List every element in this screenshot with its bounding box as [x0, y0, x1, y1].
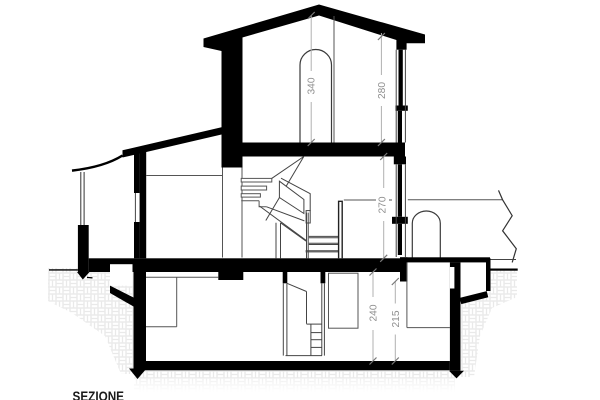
svg-text:240: 240	[368, 304, 379, 321]
svg-text:270: 270	[378, 196, 389, 213]
svg-text:215: 215	[391, 310, 402, 327]
svg-text:SEZIONE: SEZIONE	[73, 389, 125, 400]
svg-text:280: 280	[377, 82, 388, 99]
svg-text:340: 340	[307, 77, 318, 94]
